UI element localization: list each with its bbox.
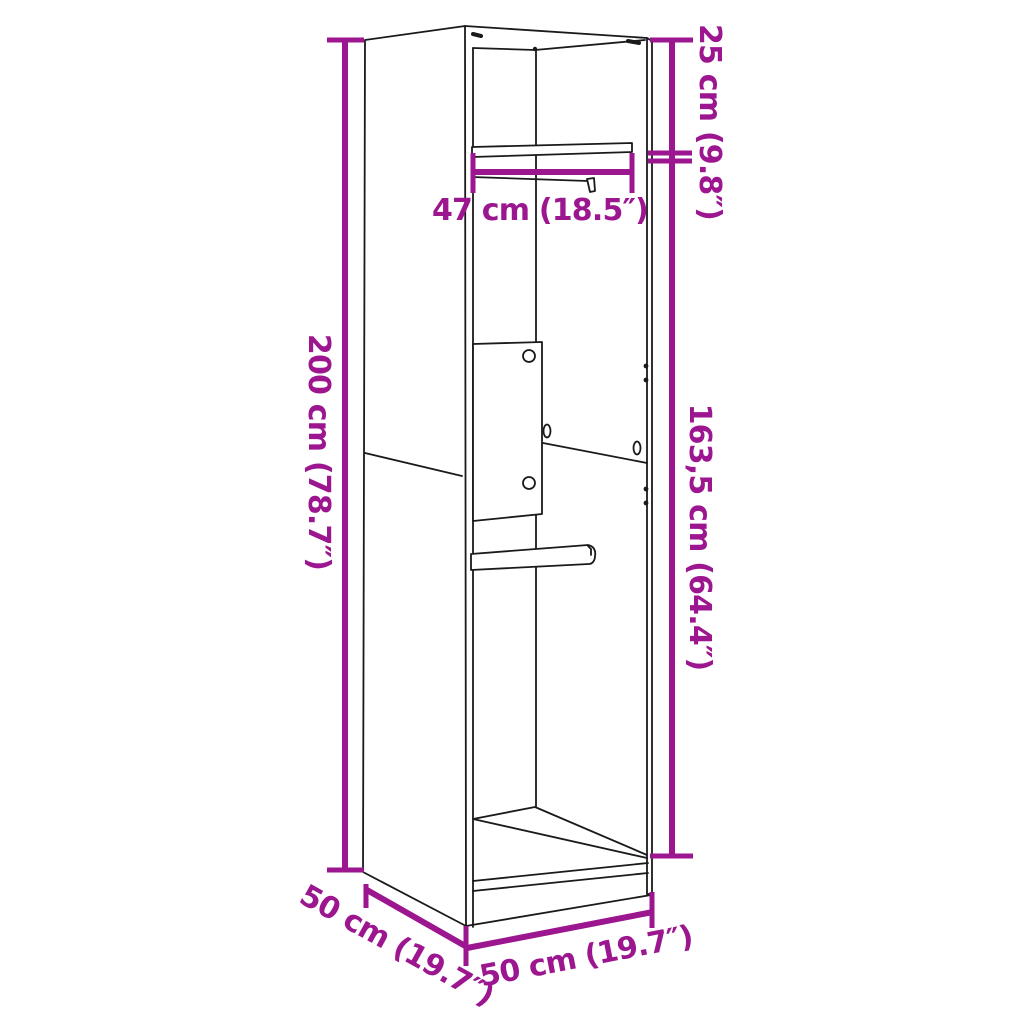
inner-width-dimension-line — [473, 153, 632, 193]
fitting-mark-top-right — [628, 41, 639, 43]
top-shelf — [472, 143, 632, 157]
edge-screw-hole-right — [634, 442, 641, 455]
lower-hanging-rail — [471, 545, 595, 570]
width-dimension-label: 50 cm (19.7″) — [477, 919, 696, 995]
height-dimension-label: 200 cm (78.7″) — [301, 334, 336, 570]
side-dot-3 — [644, 487, 649, 492]
wardrobe-drawing — [363, 26, 652, 927]
inner-width-dimension-label: 47 cm (18.5″) — [432, 193, 648, 228]
fitting-mark-top-left — [473, 34, 481, 36]
left-side-panel — [363, 26, 466, 926]
ceiling-edge — [473, 40, 645, 50]
side-dot-2 — [644, 378, 649, 383]
rail-bracket — [587, 178, 595, 192]
back-panel-seam — [543, 443, 647, 463]
wardrobe-dimension-drawing: 200 cm (78.7″) 25 cm (9.8″) 163,5 cm (64… — [0, 0, 1024, 1024]
rail-height-dimension-label: 163,5 cm (64.4″) — [682, 404, 717, 671]
side-dot-1 — [644, 364, 649, 369]
floor-edges — [473, 807, 647, 858]
hanging-rail-rod — [472, 177, 588, 181]
ceiling-dot — [533, 47, 537, 51]
top-panel-edge — [465, 26, 652, 41]
side-dot-4 — [644, 501, 649, 506]
dimension-diagram: 200 cm (78.7″) 25 cm (9.8″) 163,5 cm (64… — [0, 0, 1024, 1024]
top-offset-dimension-label: 25 cm (9.8″) — [692, 24, 727, 220]
edge-screw-hole-left — [544, 425, 551, 438]
dowel-dots — [533, 47, 649, 506]
back-connector-plate — [473, 342, 542, 521]
